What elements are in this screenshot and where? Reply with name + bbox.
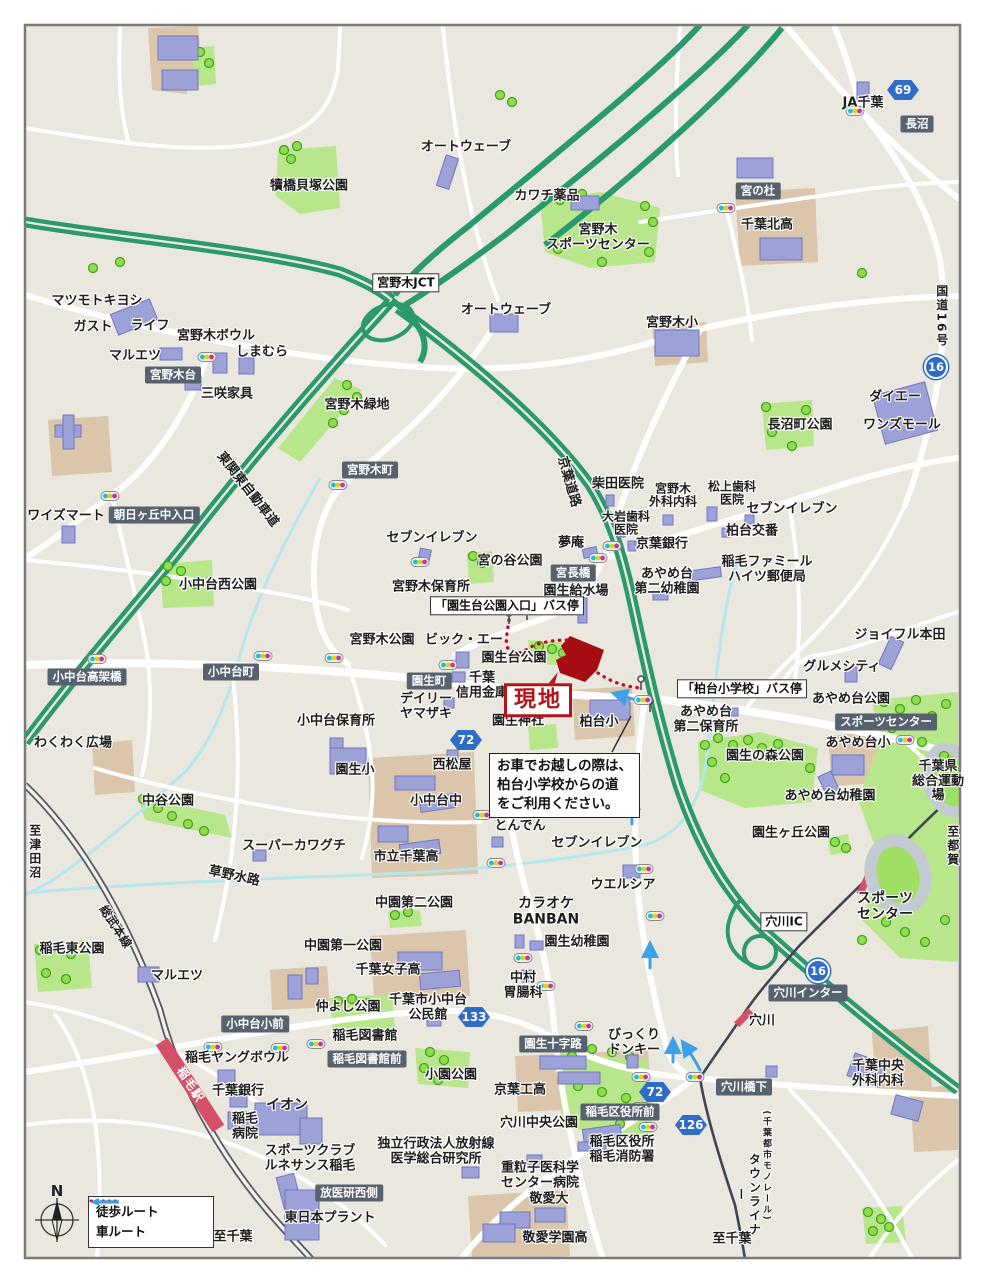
place-label: わくわく広場: [34, 737, 112, 752]
intersection-badge: 園生十字路: [519, 1036, 587, 1053]
place-label: イオン: [266, 1098, 308, 1114]
place-label: 敬愛大: [529, 1193, 568, 1208]
direction-label: タウンライナー: [734, 1152, 761, 1238]
place-label: 中谷公園: [142, 795, 194, 810]
place-label: 千葉女子高: [355, 964, 420, 979]
place-label: 宮野木保育所: [392, 581, 470, 596]
place-label: デイリー ヤマザキ: [400, 692, 452, 721]
place-label: 稲毛図書館: [332, 1030, 397, 1045]
route-shield: 126: [675, 1115, 707, 1135]
intersection-badge: 小中台町: [203, 664, 259, 681]
map-stage: 犢橋貝塚公園オートウェーブカワチ薬品宮野木 スポーツセンターJA千葉69長沼宮の…: [0, 0, 1000, 1281]
intersection-badge: 宮野木台: [145, 367, 201, 384]
place-label: 犢橋貝塚公園: [270, 180, 348, 195]
place-label: 宮野木ボウル: [177, 330, 255, 345]
place-label: 重粒子医科学 センター病院: [501, 1161, 579, 1190]
intersection-badge: 小中台小前: [221, 1016, 289, 1033]
place-label: 穴川: [749, 1015, 775, 1030]
place-label: ライフ: [130, 320, 169, 335]
place-label: 穴川中央公園: [500, 1117, 578, 1132]
place-label: セブンイレブン: [551, 837, 642, 852]
place-label: 敬愛学園高: [522, 1232, 587, 1247]
route-shield: 69: [887, 80, 919, 100]
place-label: カラオケ BANBAN: [513, 896, 579, 927]
landmark-box: 「柏台小学校」バス停: [677, 679, 807, 698]
intersection-badge: スポーツセンター: [835, 714, 937, 731]
place-label: 独立行政法人放射線 医学総合研究所: [377, 1137, 494, 1166]
place-label: 柴田医院: [592, 478, 644, 493]
place-label: 稲毛区役所 稲毛消防署: [589, 1135, 654, 1164]
place-label: 宮野木 外科内科: [649, 483, 697, 510]
direction-label: (千葉都市モノレール): [761, 1110, 771, 1221]
route-shield: 16: [806, 959, 830, 983]
place-label: あやめ台幼稚園: [784, 790, 875, 805]
place-label: ガスト: [73, 321, 112, 336]
place-label: 小中台西公園: [179, 579, 257, 594]
place-label: 園生幼稚園: [544, 936, 609, 951]
place-label: 東関東自動車道: [213, 450, 280, 531]
intersection-badge: 穴川インター: [769, 985, 848, 1002]
place-label: 京葉道路: [554, 455, 582, 509]
place-label: 園生ヶ丘公園: [752, 827, 830, 842]
place-label: 宮野木 スポーツセンター: [546, 223, 650, 252]
direction-label: 国道16号: [934, 285, 947, 348]
place-label: ワンズモール: [863, 419, 941, 434]
intersection-badge: 放医研西側: [315, 1185, 383, 1202]
place-label: とんでん: [494, 820, 545, 835]
place-label: 市立千葉高: [373, 851, 438, 866]
intersection-badge: 園生町: [407, 673, 452, 690]
place-label: オートウェーブ: [421, 141, 511, 156]
place-label: 中園第二公園: [375, 897, 453, 912]
place-label: 宮野木小: [646, 317, 698, 332]
place-label: 三咲家具: [201, 388, 253, 403]
place-label: 仲よし公園: [315, 1001, 380, 1016]
place-label: 稲毛ファミール ハイツ郵便局: [721, 555, 812, 584]
place-label: 稲毛東公園: [39, 943, 104, 958]
compass-north-label: N: [51, 1182, 64, 1200]
legend-car-row: 車ルート: [96, 1222, 206, 1242]
intersection-badge: 稲毛区役所前: [581, 1104, 660, 1121]
place-label: あやめ台小: [825, 737, 890, 752]
place-label: セブンイレブン: [746, 503, 837, 518]
place-label: グルメシティ: [803, 661, 880, 676]
place-label: 至千葉: [213, 1231, 252, 1246]
place-label: スポーツ センター: [857, 891, 913, 922]
direction-label: 至都賀: [945, 825, 958, 867]
place-label: スポーツクラブ ルネサンス稲毛: [265, 1144, 356, 1173]
place-label: 中村 胃腸科: [503, 971, 542, 1000]
place-label: 中園第一公園: [304, 940, 382, 955]
place-label: ビック・エー: [425, 634, 503, 649]
place-label: 千葉市小中台 公民館: [389, 993, 467, 1022]
route-shield: 72: [639, 1082, 671, 1102]
place-label: あやめ台公園: [812, 693, 890, 708]
place-label: 園生の森公園: [726, 750, 804, 765]
place-label: 長沼町公園: [767, 419, 832, 434]
place-label: 千葉北高: [741, 219, 793, 234]
place-label: マツモトキヨシ: [51, 295, 142, 310]
place-label: 宮野木緑地: [324, 399, 389, 414]
place-label: 小中台保育所: [297, 715, 375, 730]
station-label: 稲毛駅: [174, 1065, 207, 1105]
driving-note: お車でお越しの際は、 柏台小学校からの道 をご利用ください。: [489, 753, 640, 818]
intersection-badge: 宮の杜: [736, 183, 781, 200]
place-label: ワイズマート: [27, 510, 105, 525]
place-label: 千葉銀行: [212, 1085, 264, 1100]
place-label: マルエツ: [109, 350, 161, 365]
place-label: ウエルシア: [590, 879, 655, 894]
place-label: 柏台交番: [726, 525, 778, 540]
intersection-badge: 小中台高架橋: [48, 669, 127, 686]
place-label: JA千葉: [843, 97, 884, 112]
landmark-box: 宮野木JCT: [372, 273, 439, 292]
intersection-badge: 稲毛図書館前: [328, 1051, 407, 1068]
place-label: オートウェーブ: [461, 304, 551, 319]
place-label: 柏台小: [579, 716, 618, 731]
map-labels-layer: 犢橋貝塚公園オートウェーブカワチ薬品宮野木 スポーツセンターJA千葉69長沼宮の…: [0, 0, 1000, 1281]
place-label: 稲毛 病院: [232, 1112, 258, 1141]
place-label: 千葉中央 外科内科: [852, 1059, 904, 1088]
place-label: 園生小: [335, 764, 374, 779]
place-label: 夢庵: [558, 537, 584, 552]
place-label: 大岩歯科 医院: [602, 511, 650, 538]
place-label: 園生台公園: [481, 652, 546, 667]
landmark-box: 「園生台公園入口」バス停: [430, 596, 584, 615]
place-label: スーパーカワグチ: [242, 840, 346, 855]
place-label: 小園公園: [425, 1069, 477, 1084]
place-label: ジョイフル本田: [854, 629, 945, 644]
place-label: 宮の谷公園: [477, 555, 542, 570]
intersection-badge: 穴川橋下: [716, 1079, 772, 1096]
place-label: 小中台中: [410, 795, 462, 810]
direction-label: 至津田沼: [27, 824, 40, 880]
place-label: セブンイレブン: [386, 532, 477, 547]
place-label: 京葉銀行: [636, 538, 688, 553]
place-label: しまむら: [236, 346, 288, 361]
route-shield: 16: [924, 355, 948, 379]
intersection-badge: 長沼: [901, 116, 934, 133]
car-route-sample-icon: [89, 1197, 121, 1207]
landmark-box: 穴川IC: [760, 912, 807, 931]
place-label: 京葉工高: [494, 1084, 546, 1099]
route-shield: 72: [450, 730, 482, 750]
place-label: 東日本プラント: [284, 1212, 375, 1227]
place-label: 稲毛ヤングボウル: [185, 1052, 289, 1067]
place-label: 西松屋: [432, 759, 471, 774]
route-legend: 徒歩ルート 車ルート: [88, 1196, 214, 1248]
place-label: カワチ薬品: [514, 190, 579, 205]
place-label: 宮野木公園: [349, 634, 414, 649]
place-label: ダイエー: [869, 391, 921, 406]
site-marker-label: 現地: [504, 683, 572, 717]
place-label: 草野水路: [207, 864, 261, 889]
legend-car-label: 車ルート: [96, 1222, 146, 1242]
place-label: あやめ台 第二幼稚園: [634, 567, 699, 596]
intersection-badge: 宮長橋: [551, 565, 596, 582]
place-label: 千葉 信用金庫: [456, 671, 508, 700]
place-label: 千葉県 総合運動場: [907, 760, 969, 804]
place-label: びっくり ドンキー: [608, 1028, 660, 1057]
place-label: 園生神社: [492, 715, 544, 730]
intersection-badge: 宮野木町: [342, 462, 398, 479]
intersection-badge: 朝日ヶ丘中入口: [109, 507, 200, 524]
place-label: マルエツ: [151, 970, 203, 985]
place-label: あやめ台 第二保育所: [673, 705, 738, 734]
